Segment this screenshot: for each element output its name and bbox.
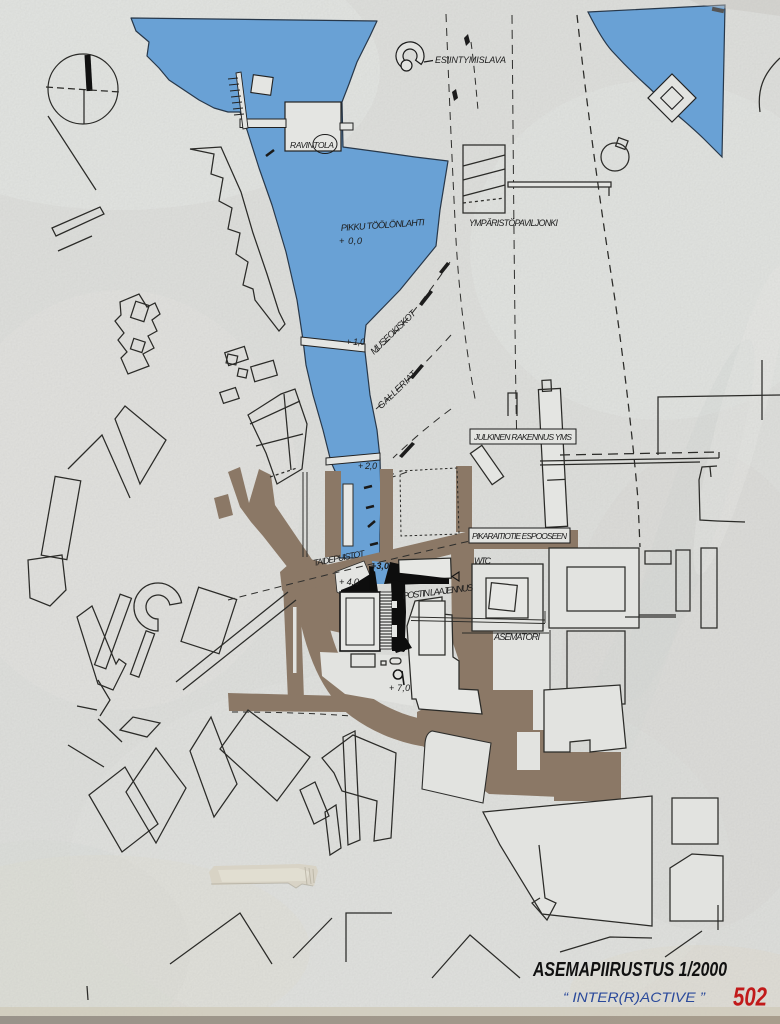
svg-text:ASEMAPIIRUSTUS 1/2000: ASEMAPIIRUSTUS 1/2000 bbox=[532, 959, 727, 981]
svg-text:PIKARAITIOTIE ESPOOSEEN: PIKARAITIOTIE ESPOOSEEN bbox=[472, 531, 568, 541]
svg-text:+ 4,0: + 4,0 bbox=[339, 577, 360, 587]
svg-text:ASEMATORI: ASEMATORI bbox=[493, 632, 540, 642]
svg-text:+ 7,0: + 7,0 bbox=[389, 683, 410, 693]
svg-text:JULKINEN RAKENNUS YMS: JULKINEN RAKENNUS YMS bbox=[473, 432, 572, 442]
svg-text:WTC: WTC bbox=[474, 556, 492, 566]
svg-text:ESIINTYMISLAVA: ESIINTYMISLAVA bbox=[435, 55, 506, 65]
svg-text:RAVINTOLA: RAVINTOLA bbox=[290, 140, 334, 150]
svg-text:+ 1,0: + 1,0 bbox=[346, 337, 365, 347]
svg-text:YMPÄRISTÖPAVILJONKI: YMPÄRISTÖPAVILJONKI bbox=[469, 218, 559, 228]
svg-text:+3,0: +3,0 bbox=[371, 561, 389, 571]
svg-text:+ 0,0: + 0,0 bbox=[339, 236, 363, 246]
svg-text:“ INTER(R)ACTIVE ”: “ INTER(R)ACTIVE ” bbox=[563, 989, 706, 1005]
svg-text:+ 2,0: + 2,0 bbox=[358, 461, 377, 471]
